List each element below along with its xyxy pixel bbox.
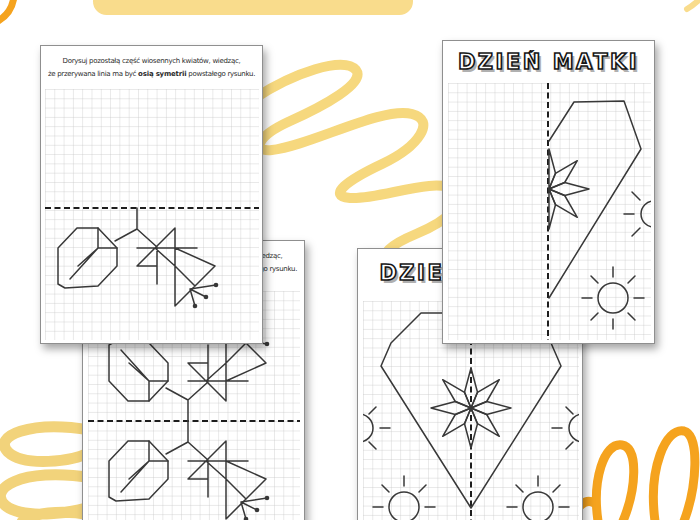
scribble-mark-top-right: [687, 0, 700, 9]
instruction-line2: że przerywana linia ma być osią symetrii…: [41, 68, 262, 81]
symmetry-grid-half-heart: [448, 83, 651, 340]
worksheet-title: DZIEŃ MATKI: [443, 50, 654, 74]
symmetry-grid-half-flowers: [45, 89, 259, 340]
instruction-line1: Dorysuj pozostałą część wiosennych kwiat…: [41, 55, 262, 68]
worksheet-card-top-left: Dorysuj pozostałą część wiosennych kwiat…: [40, 45, 263, 344]
worksheet-card-top-right: DZIEŃ MATKI: [442, 40, 655, 344]
scribble-arc-top-left: [0, 0, 14, 24]
instruction-text: Dorysuj pozostałą część wiosennych kwiat…: [41, 46, 262, 81]
top-banner: [93, 0, 413, 15]
scribble-zigzag-center: [252, 65, 461, 260]
scribble-loops-bottom-right: [572, 431, 695, 520]
